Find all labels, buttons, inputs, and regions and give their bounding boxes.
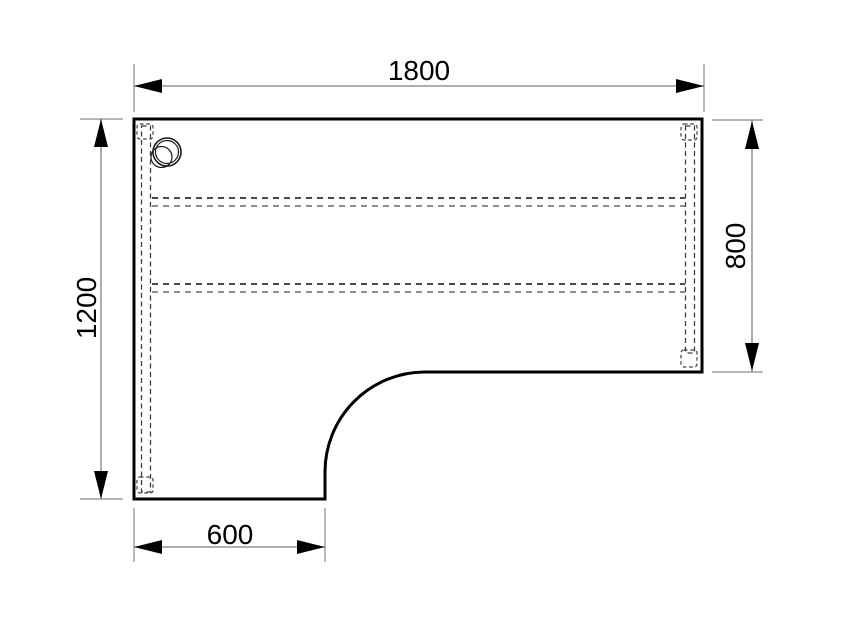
dim-right-arrow-bottom-icon [745,343,759,371]
dim-left-label: 1200 [71,277,102,339]
drawing-canvas: 1800 1200 800 600 [0,0,859,634]
dimension-top-width: 1800 [134,55,704,112]
dim-right-label: 800 [720,223,751,270]
dim-left-arrow-bottom-icon [94,471,108,499]
dim-bottom-arrow-right-icon [297,540,325,554]
dim-top-arrow-right-icon [676,79,704,93]
dim-top-label: 1800 [388,55,450,86]
dimension-return-width: 600 [134,508,325,562]
dim-top-arrow-left-icon [134,79,162,93]
dimension-left-height: 1200 [71,119,123,499]
dimension-right-height: 800 [712,120,763,372]
dim-bottom-arrow-left-icon [134,540,162,554]
dim-bottom-label: 600 [207,519,254,550]
desk-outline [134,119,702,499]
dim-right-arrow-top-icon [745,121,759,149]
dim-left-arrow-top-icon [94,119,108,147]
desk-plan-drawing: 1800 1200 800 600 [0,0,859,634]
